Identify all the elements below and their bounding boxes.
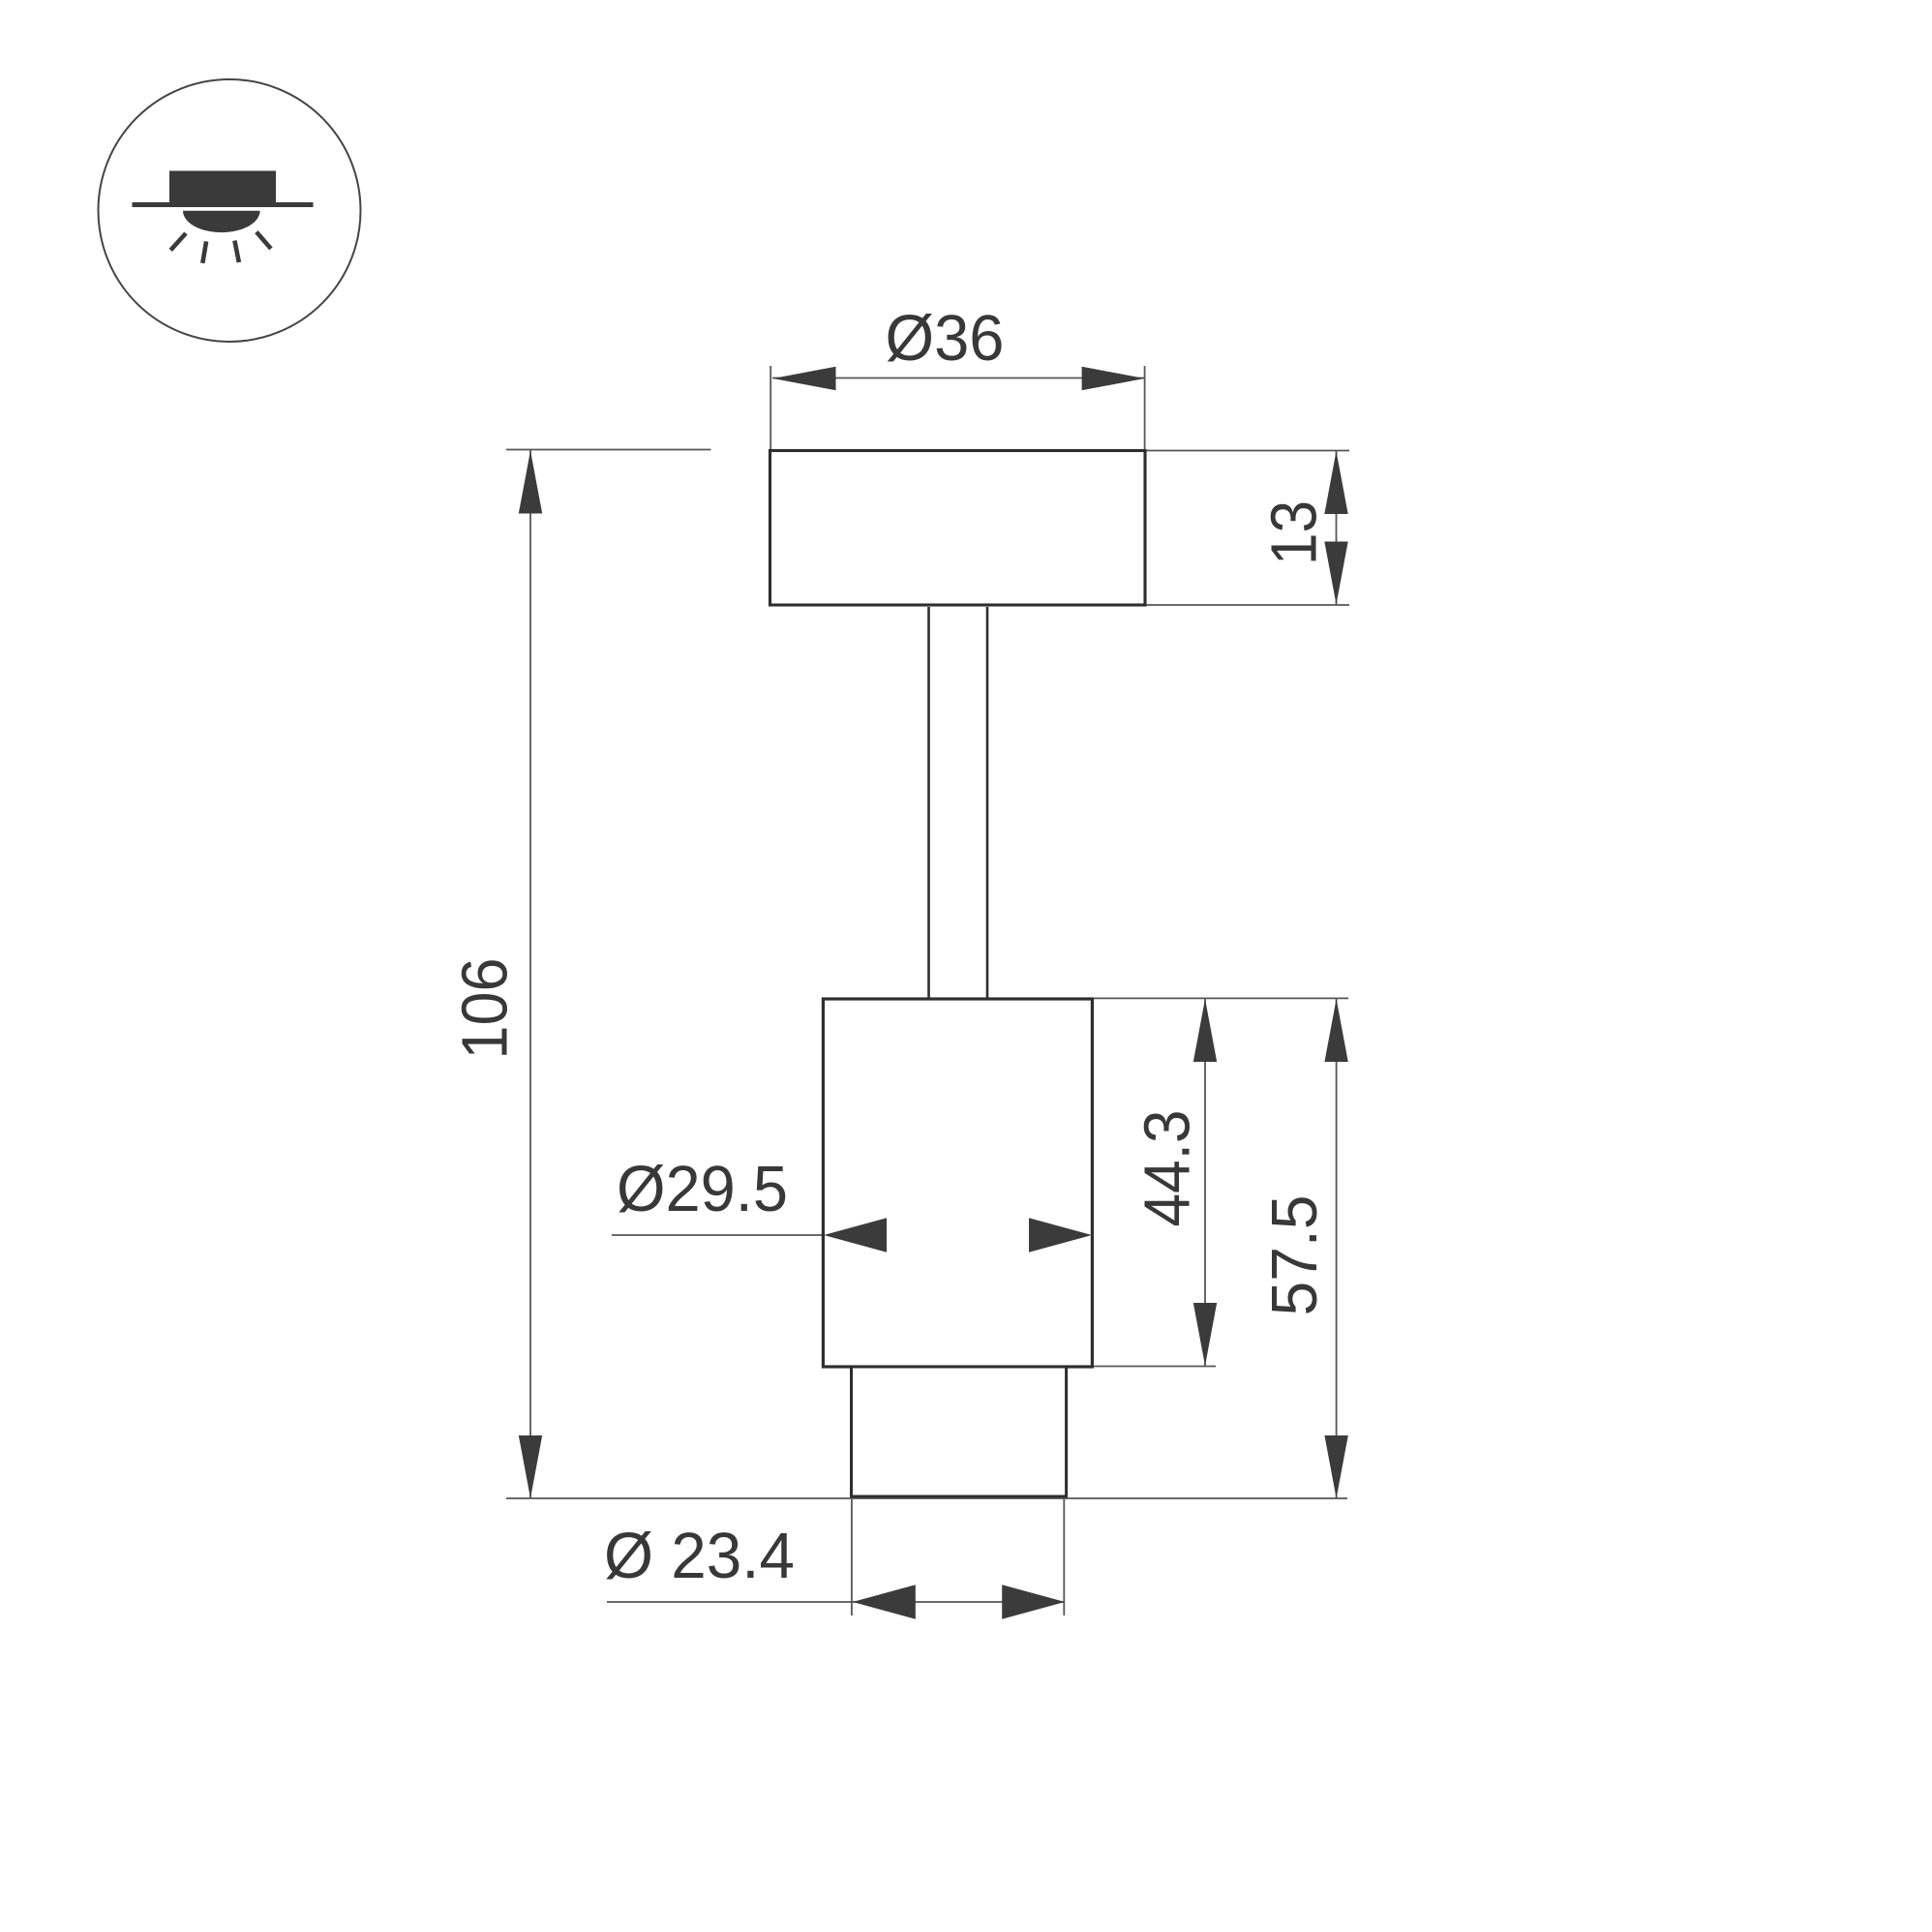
svg-text:57.5: 57.5 <box>1258 1195 1331 1316</box>
svg-text:106: 106 <box>449 958 522 1060</box>
svg-text:Ø36: Ø36 <box>886 302 1005 375</box>
svg-text:44.3: 44.3 <box>1132 1110 1204 1227</box>
svg-text:Ø29.5: Ø29.5 <box>617 1153 788 1225</box>
svg-text:Ø 23.4: Ø 23.4 <box>604 1520 795 1592</box>
svg-text:13: 13 <box>1258 500 1331 565</box>
